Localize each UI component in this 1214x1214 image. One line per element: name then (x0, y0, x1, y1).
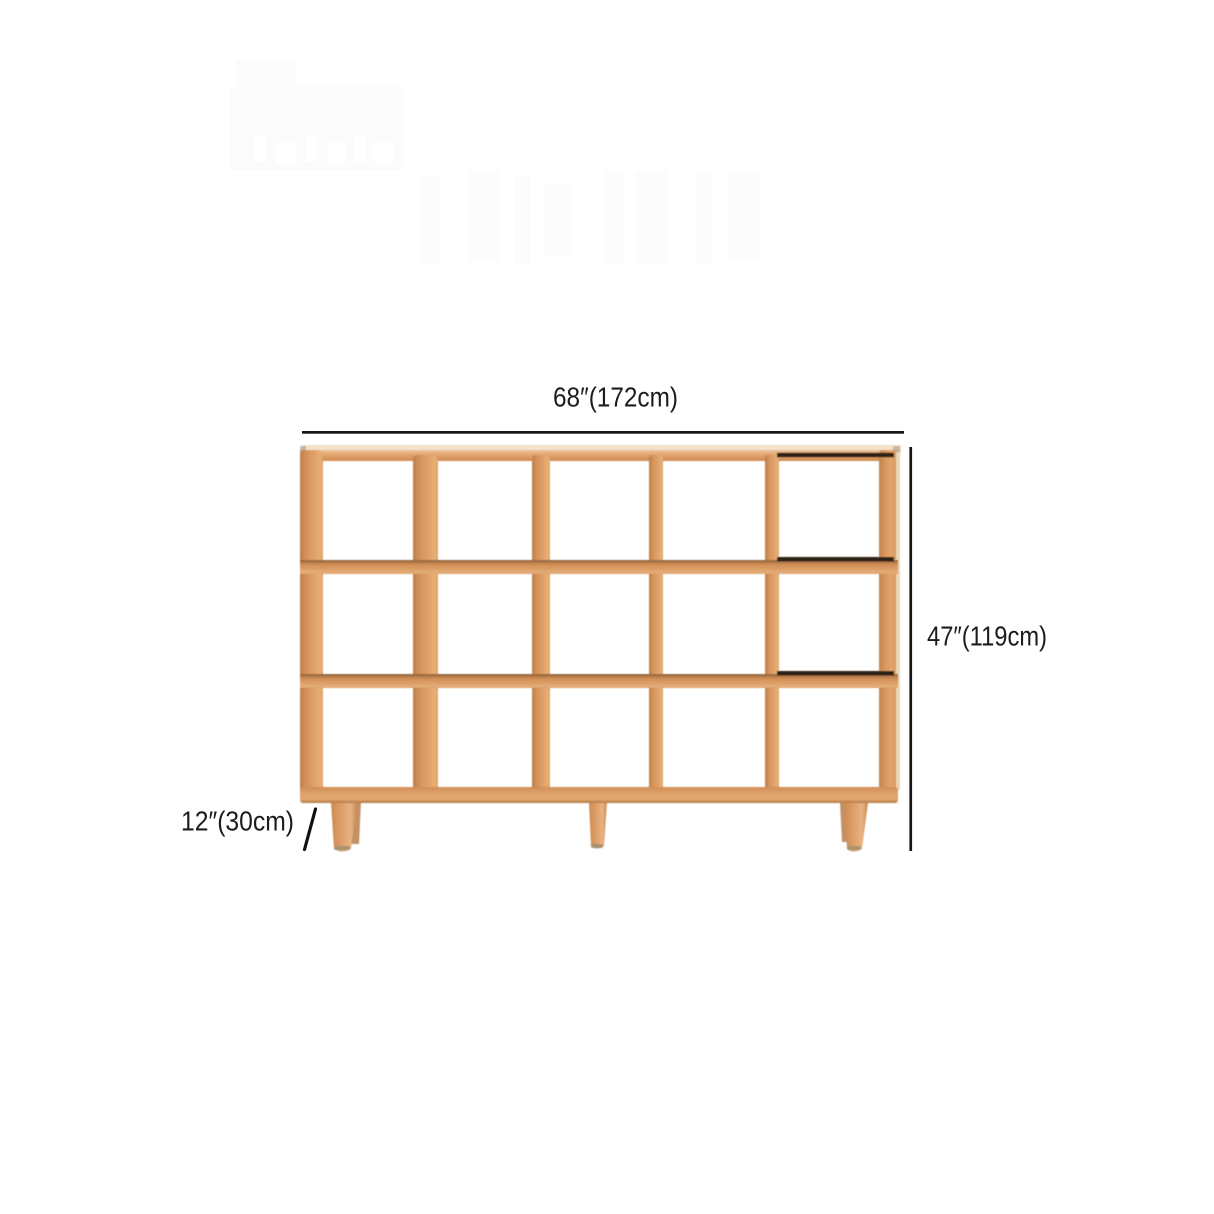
svg-text:68″(172cm): 68″(172cm) (553, 382, 678, 413)
svg-text:47″(119cm): 47″(119cm) (927, 621, 1047, 652)
svg-text:12″(30cm): 12″(30cm) (181, 806, 294, 837)
